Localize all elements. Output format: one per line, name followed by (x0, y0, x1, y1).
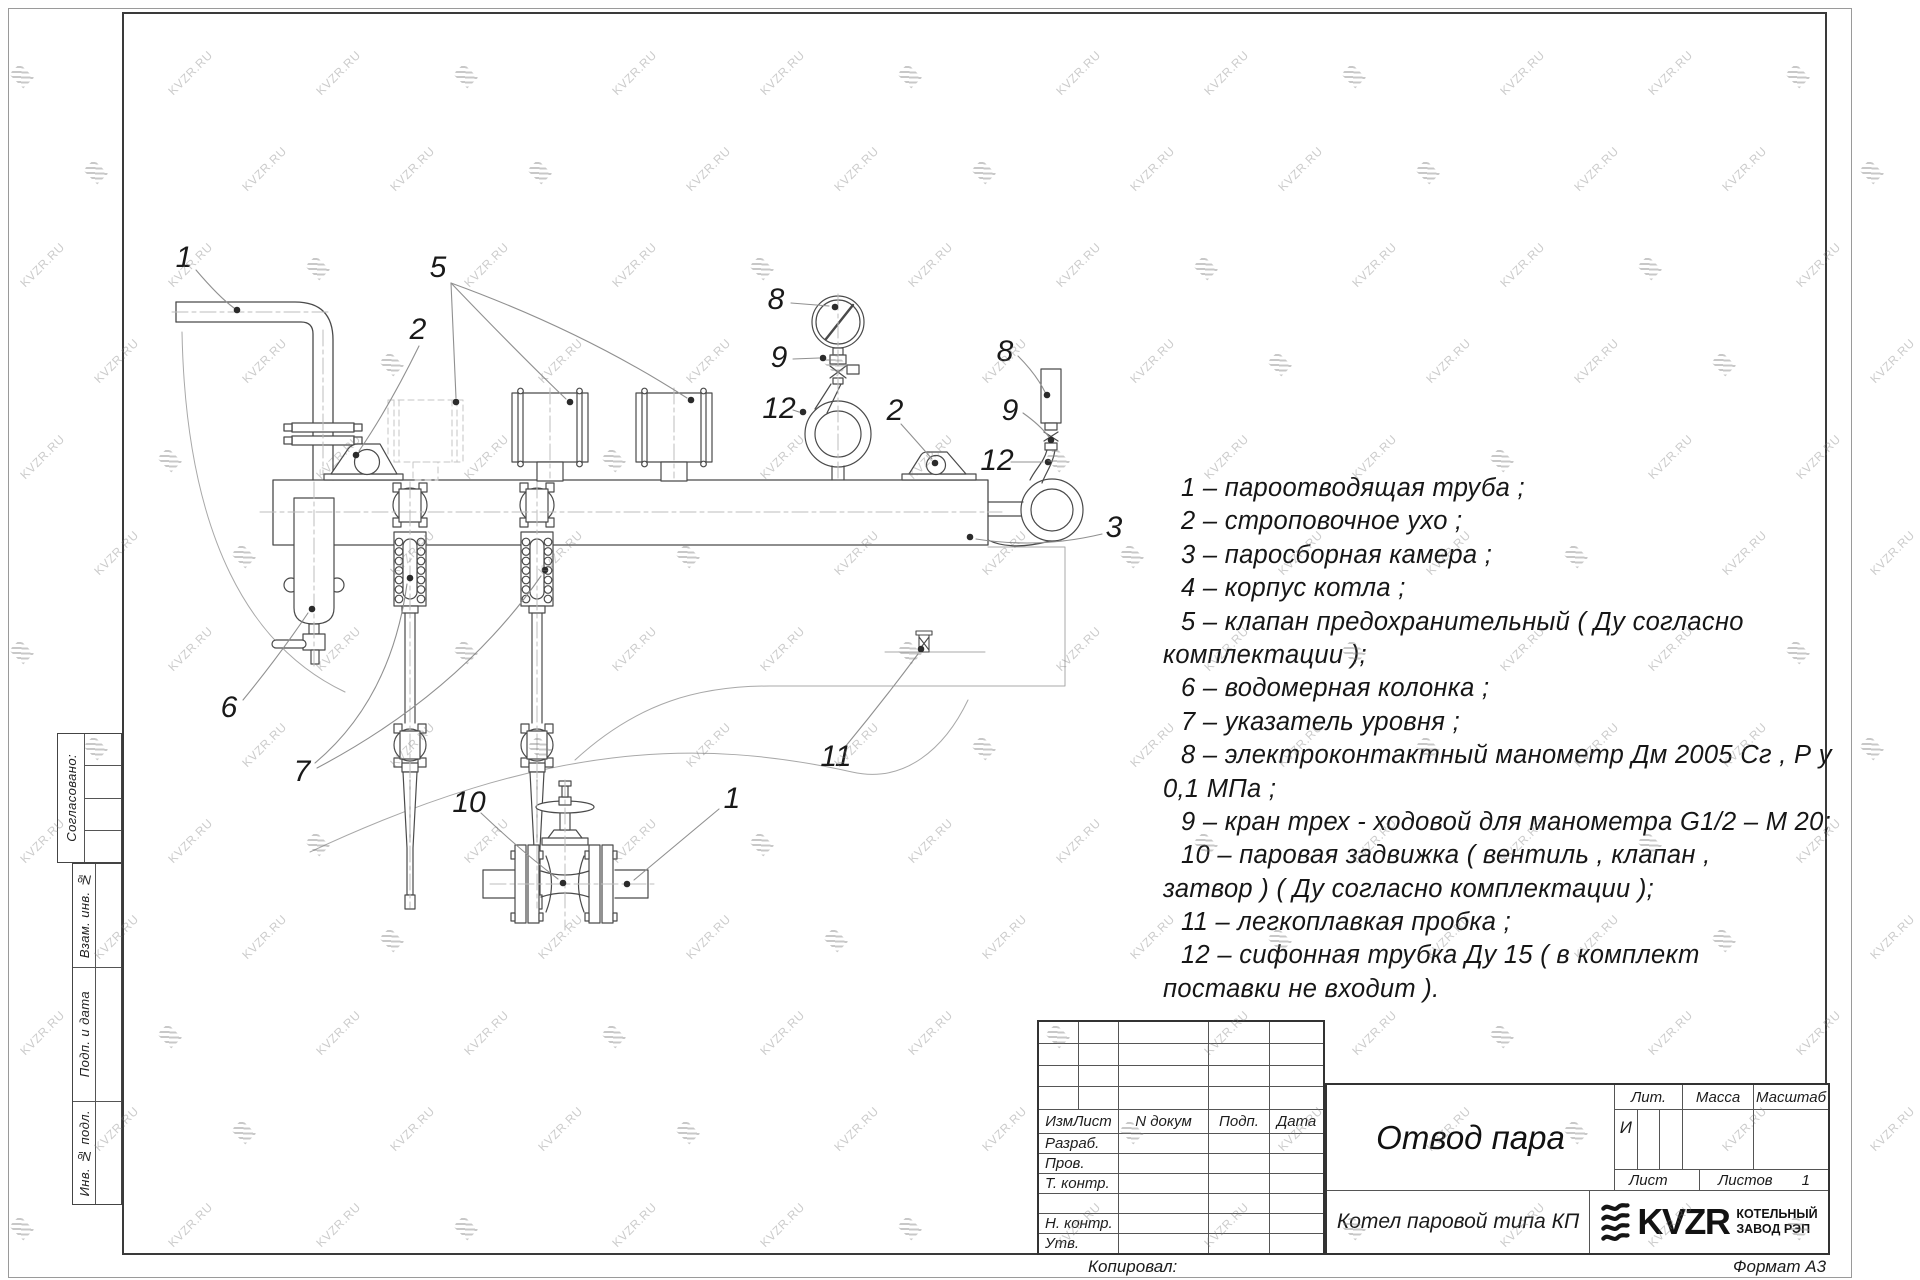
callout-number: 1 (724, 782, 741, 816)
lit-column: Лит. И (1615, 1085, 1682, 1169)
approved-cell: Согласовано: (58, 734, 85, 862)
approval-grid (85, 734, 121, 862)
sheet-row: Лист Листов 1 (1615, 1169, 1828, 1190)
stamp-row: Подп. и дата (73, 968, 121, 1102)
callout-number: 12 (980, 444, 1013, 478)
row-label: Разраб. (1039, 1134, 1119, 1153)
col-data: Дата (1270, 1110, 1323, 1133)
callout-number: 5 (430, 251, 447, 285)
stamp-label: Инв. № подл. (77, 1110, 92, 1196)
drawing-sheet: Согласовано: Взам. инв. № Подп. и дата И… (0, 0, 1920, 1280)
title-block-right: Отвод пара Лит. И Масса Масштаб (1325, 1083, 1830, 1255)
revision-grid (1039, 1022, 1323, 1110)
title-block-staff-rows: Разраб. Пров. Т. контр. Н. контр. Утв. (1039, 1134, 1323, 1253)
row-label (1039, 1194, 1119, 1213)
lit-value: И (1615, 1110, 1638, 1169)
brand-subtitle-2: ЗАВОД РЭП (1736, 1222, 1817, 1237)
callout-number: 9 (1002, 394, 1019, 428)
scale-column: Масштаб (1753, 1085, 1828, 1169)
lit-label: Лит. (1615, 1085, 1682, 1110)
callout-number: 6 (221, 691, 238, 725)
title-block-left: ИзмЛист N докум Подп. Дата Разраб. Пров.… (1037, 1020, 1325, 1255)
callout-number: 2 (887, 394, 904, 428)
sheets-label: Листов (1718, 1172, 1773, 1189)
col-izm-list: ИзмЛист (1039, 1110, 1119, 1133)
mass-column: Масса (1682, 1085, 1753, 1169)
callout-number: 11 (820, 740, 851, 774)
callout-number: 7 (294, 755, 311, 789)
callout-number: 8 (768, 283, 785, 317)
brand-logo: KVZR КОТЕЛЬНЫЙ ЗАВОД РЭП (1590, 1191, 1828, 1253)
scale-label: Масштаб (1754, 1085, 1828, 1110)
row-label: Пров. (1039, 1154, 1119, 1173)
row-label: Утв. (1039, 1234, 1119, 1253)
callout-number: 12 (762, 392, 795, 426)
approval-stamp-box: Согласовано: (57, 733, 122, 863)
title-block-header-row: ИзмЛист N докум Подп. Дата (1039, 1110, 1323, 1134)
product-name: Котел паровой типа КП (1327, 1191, 1590, 1253)
drawing-title: Отвод пара (1327, 1085, 1615, 1190)
row-label: Т. контр. (1039, 1174, 1119, 1193)
brand-name: KVZR (1637, 1201, 1729, 1243)
col-dokum: N докум (1119, 1110, 1209, 1133)
stamp-label: Взам. инв. № (77, 872, 92, 958)
stamp-row: Взам. инв. № (73, 864, 121, 968)
sheets-value: 1 (1802, 1172, 1810, 1189)
brand-subtitle-1: КОТЕЛЬНЫЙ (1736, 1207, 1817, 1222)
row-label: Н. контр. (1039, 1214, 1119, 1233)
callout-number: 3 (1106, 511, 1123, 545)
callout-number: 9 (771, 341, 788, 375)
callout-number: 10 (452, 786, 485, 820)
stamp-row: Инв. № подл. (73, 1102, 121, 1204)
callout-number: 1 (176, 241, 193, 275)
callout-number: 2 (410, 313, 427, 347)
stamp-label: Подп. и дата (77, 991, 92, 1077)
col-podp: Подп. (1209, 1110, 1270, 1133)
mass-label: Масса (1683, 1085, 1753, 1110)
copied-label: Копировал: (1088, 1257, 1177, 1277)
format-label: Формат А3 (1733, 1257, 1826, 1277)
coil-icon (1600, 1201, 1630, 1243)
callout-number: 8 (997, 335, 1014, 369)
approved-label: Согласовано: (64, 754, 79, 842)
sheet-label: Лист (1629, 1172, 1668, 1189)
inventory-stamp-column: Взам. инв. № Подп. и дата Инв. № подл. (72, 863, 122, 1205)
